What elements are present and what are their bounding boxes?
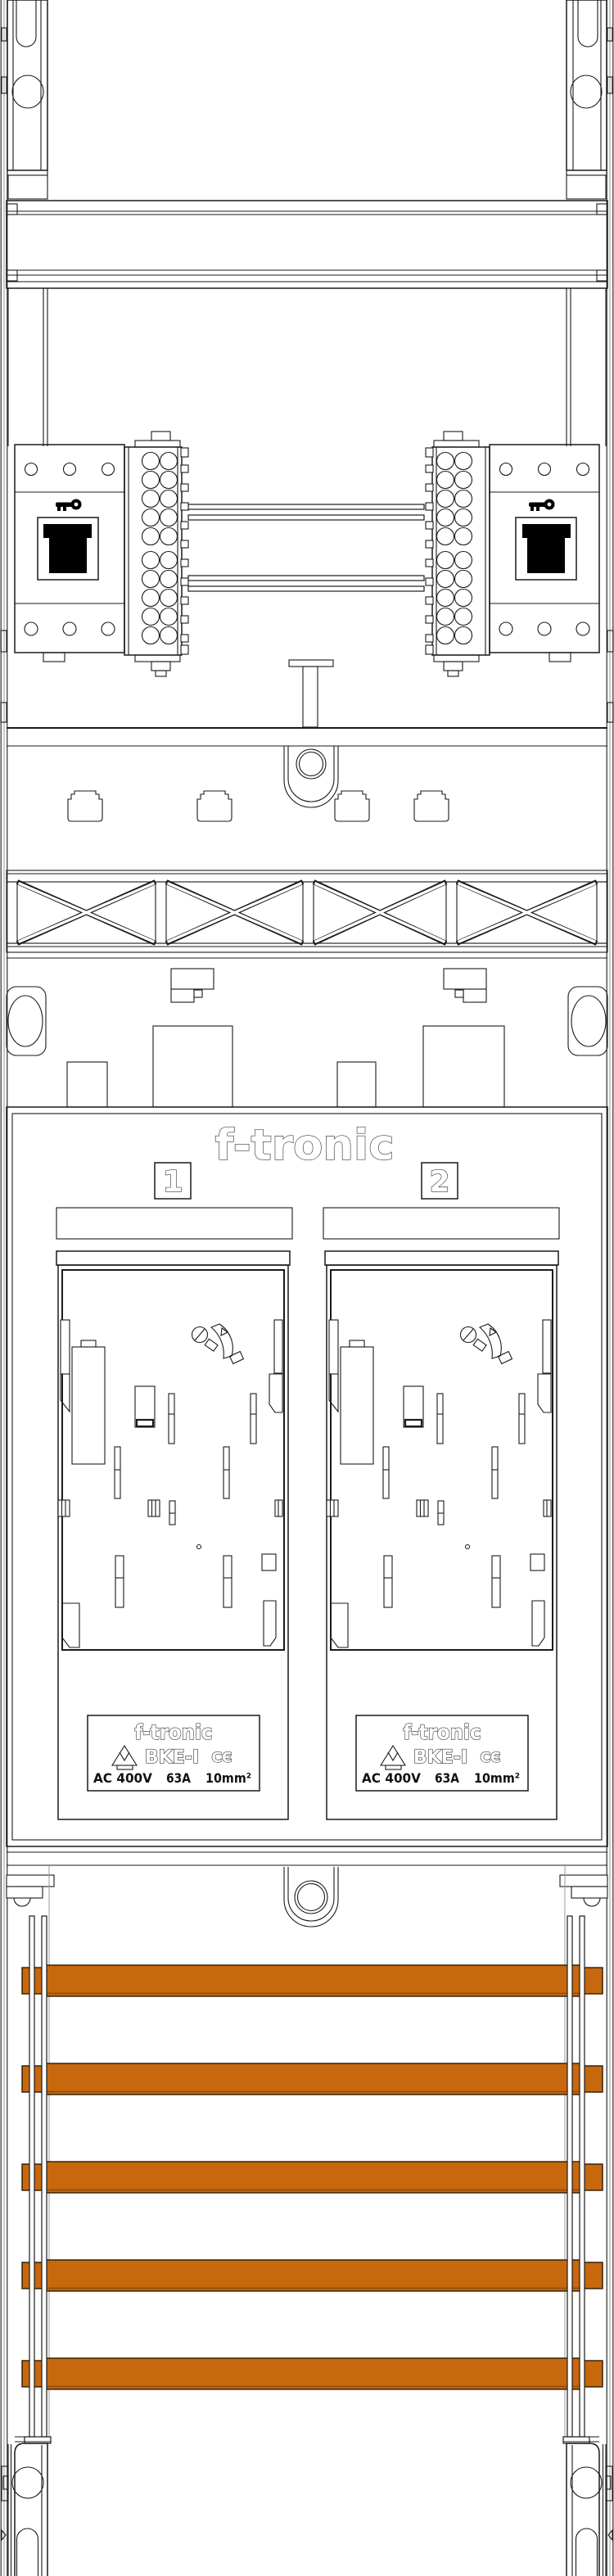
bottom-bracket-right bbox=[560, 1875, 607, 1906]
key-icon bbox=[529, 499, 555, 512]
meter-panel: f-tronic 1 2 f-tronic BKE-I CЄ AC bbox=[7, 1107, 607, 1846]
busbar-section bbox=[7, 1852, 607, 2443]
corner-bracket-left bbox=[7, 987, 46, 1055]
vde-triangle-icon bbox=[381, 1746, 405, 1769]
mounting-tab bbox=[423, 1026, 504, 1107]
bottom-frame-rail-right bbox=[563, 2437, 612, 2576]
key-icon bbox=[56, 499, 82, 512]
busbar bbox=[22, 1965, 603, 1996]
bottom-cable-housing bbox=[284, 1867, 338, 1927]
busbars bbox=[22, 1965, 603, 2389]
rating-cross-section: 10mm² bbox=[205, 1770, 251, 1786]
rj45-cutout bbox=[197, 791, 232, 821]
field-number-1: 1 bbox=[162, 1165, 183, 1199]
rj45-cutout bbox=[335, 791, 369, 821]
hanging-tab-right bbox=[444, 969, 486, 1002]
rating-brand: f-tronic bbox=[135, 1720, 213, 1744]
rating-model: BKE-I bbox=[145, 1747, 199, 1768]
lock-module-terminal-left bbox=[15, 432, 188, 676]
center-support bbox=[289, 660, 333, 727]
busbar bbox=[22, 2358, 603, 2389]
ce-mark: CЄ bbox=[212, 1750, 233, 1766]
corner-bracket-right bbox=[568, 987, 607, 1055]
nameplate-left bbox=[56, 1208, 292, 1239]
bke-internals-1 bbox=[58, 1320, 282, 1647]
side-rail-left bbox=[8, 288, 47, 446]
rj45-cutout bbox=[414, 791, 449, 821]
rating-voltage: AC 400V bbox=[362, 1770, 422, 1786]
bottom-frame-rail-left bbox=[2, 2437, 51, 2576]
rj45-cutout bbox=[68, 791, 102, 821]
corner-slot-ellipse-left bbox=[8, 996, 43, 1046]
mounting-tab-zone bbox=[7, 969, 607, 1107]
top-mounting-rail-left bbox=[7, 0, 47, 199]
cross-brace-truss bbox=[7, 870, 607, 958]
corner-slot-ellipse-right bbox=[571, 996, 606, 1046]
ce-mark: CЄ bbox=[481, 1750, 501, 1766]
mounting-tab bbox=[337, 1062, 376, 1107]
rating-label-1: f-tronic BKE-I CЄ AC 400V 63A 10mm² bbox=[88, 1715, 260, 1791]
lock-module-terminal-right bbox=[426, 432, 599, 676]
bottom-bracket-left bbox=[7, 1875, 54, 1906]
field-number-2: 2 bbox=[429, 1165, 449, 1199]
connection-wires bbox=[188, 504, 424, 591]
bke-internals-2 bbox=[327, 1320, 551, 1647]
top-mounting-rail-right bbox=[567, 0, 607, 199]
rating-label-2: f-tronic BKE-I CЄ AC 400V 63A 10mm² bbox=[356, 1715, 528, 1791]
rating-voltage: AC 400V bbox=[93, 1770, 153, 1786]
drawing-canvas: f-tronic 1 2 f-tronic BKE-I CЄ AC bbox=[0, 0, 614, 2576]
mounting-tab bbox=[67, 1062, 107, 1107]
vde-triangle-icon bbox=[112, 1746, 137, 1769]
rating-cross-section: 10mm² bbox=[474, 1770, 520, 1786]
side-rail-right bbox=[567, 288, 606, 446]
rating-current: 63A bbox=[435, 1770, 460, 1786]
hanging-tab-left bbox=[171, 969, 214, 1002]
busbar bbox=[22, 2260, 603, 2291]
meter-board-drawing: f-tronic 1 2 f-tronic BKE-I CЄ AC bbox=[0, 0, 614, 2576]
cable-entry-panel bbox=[7, 728, 607, 821]
top-crossbeam bbox=[7, 201, 607, 288]
rating-brand: f-tronic bbox=[404, 1720, 481, 1744]
rating-current: 63A bbox=[166, 1770, 192, 1786]
brand-logo: f-tronic bbox=[215, 1121, 395, 1170]
busbar bbox=[22, 2162, 603, 2193]
busbar bbox=[22, 2063, 603, 2095]
mounting-tab bbox=[153, 1026, 233, 1107]
nameplate-right bbox=[323, 1208, 559, 1239]
rating-model: BKE-I bbox=[413, 1747, 467, 1768]
